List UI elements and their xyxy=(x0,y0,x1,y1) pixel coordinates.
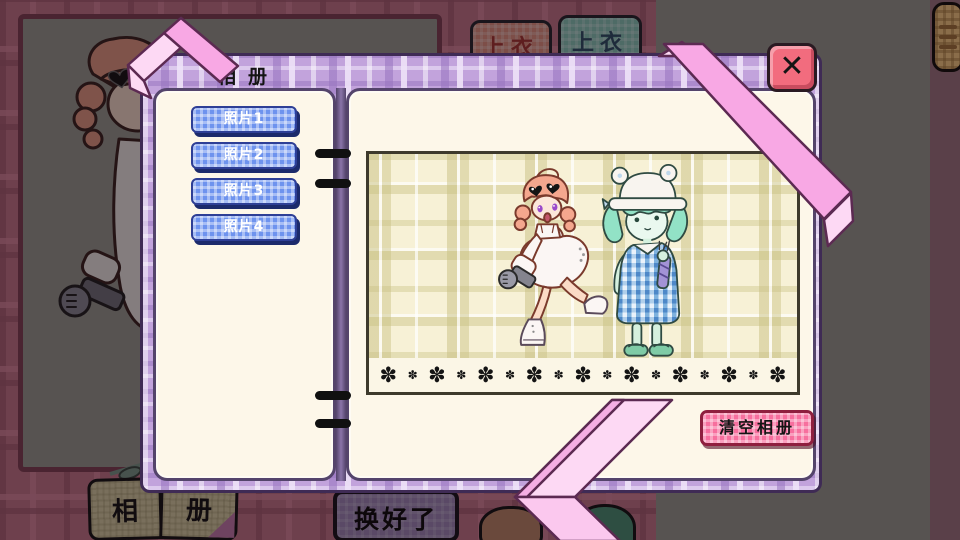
mint-girl xyxy=(603,165,687,356)
flower-ornament-icon: ✽ xyxy=(505,369,515,381)
close-icon: ✕ xyxy=(779,49,804,84)
flower-ornament-icon: ✽ xyxy=(380,365,398,386)
binder-ring xyxy=(315,391,351,400)
flower-ornament-icon: ✽ xyxy=(748,369,758,381)
flower-ornament-icon: ✽ xyxy=(651,369,661,381)
binder-ring xyxy=(315,149,351,158)
photo-button-1[interactable]: 照片1 xyxy=(191,106,297,133)
close-dialog-button[interactable]: ✕ xyxy=(767,43,817,92)
flower-ornament-icon: ✽ xyxy=(408,369,418,381)
photo-button-2[interactable]: 照片2 xyxy=(191,142,297,169)
album-photo: ✽✽✽✽✽✽✽✽✽✽✽✽✽✽✽✽✽ xyxy=(366,151,800,395)
flower-ornament-icon: ✽ xyxy=(769,365,787,386)
flower-ornament-icon: ✽ xyxy=(720,365,738,386)
flower-ornament-icon: ✽ xyxy=(428,365,446,386)
flower-ornament-icon: ✽ xyxy=(700,369,710,381)
clear-album-button[interactable]: 清空相册 xyxy=(700,410,814,446)
photo-characters-illustration xyxy=(369,154,797,392)
flower-ornament-icon: ✽ xyxy=(526,365,544,386)
photo-album-dialog: 相册 照片1照片2照片3照片4 xyxy=(140,53,822,493)
binder-ring xyxy=(315,179,351,188)
pink-girl xyxy=(499,169,607,345)
photo-flower-ornament-row: ✽✽✽✽✽✽✽✽✽✽✽✽✽✽✽✽✽ xyxy=(369,358,797,392)
dialog-title: 相册 xyxy=(168,62,328,88)
photo-button-4[interactable]: 照片4 xyxy=(191,214,297,241)
flower-ornament-icon: ✽ xyxy=(623,365,641,386)
binder-ring xyxy=(315,419,351,428)
flower-ornament-icon: ✽ xyxy=(477,365,495,386)
flower-ornament-icon: ✽ xyxy=(672,365,690,386)
flower-ornament-icon: ✽ xyxy=(602,369,612,381)
flower-ornament-icon: ✽ xyxy=(554,369,564,381)
photo-button-3[interactable]: 照片3 xyxy=(191,178,297,205)
flower-ornament-icon: ✽ xyxy=(456,369,466,381)
flower-ornament-icon: ✽ xyxy=(574,365,592,386)
dressup-game-screen: 上衣 上衣 相 册 换好了 相册 照片1照片2照片3照片4 xyxy=(0,0,960,540)
